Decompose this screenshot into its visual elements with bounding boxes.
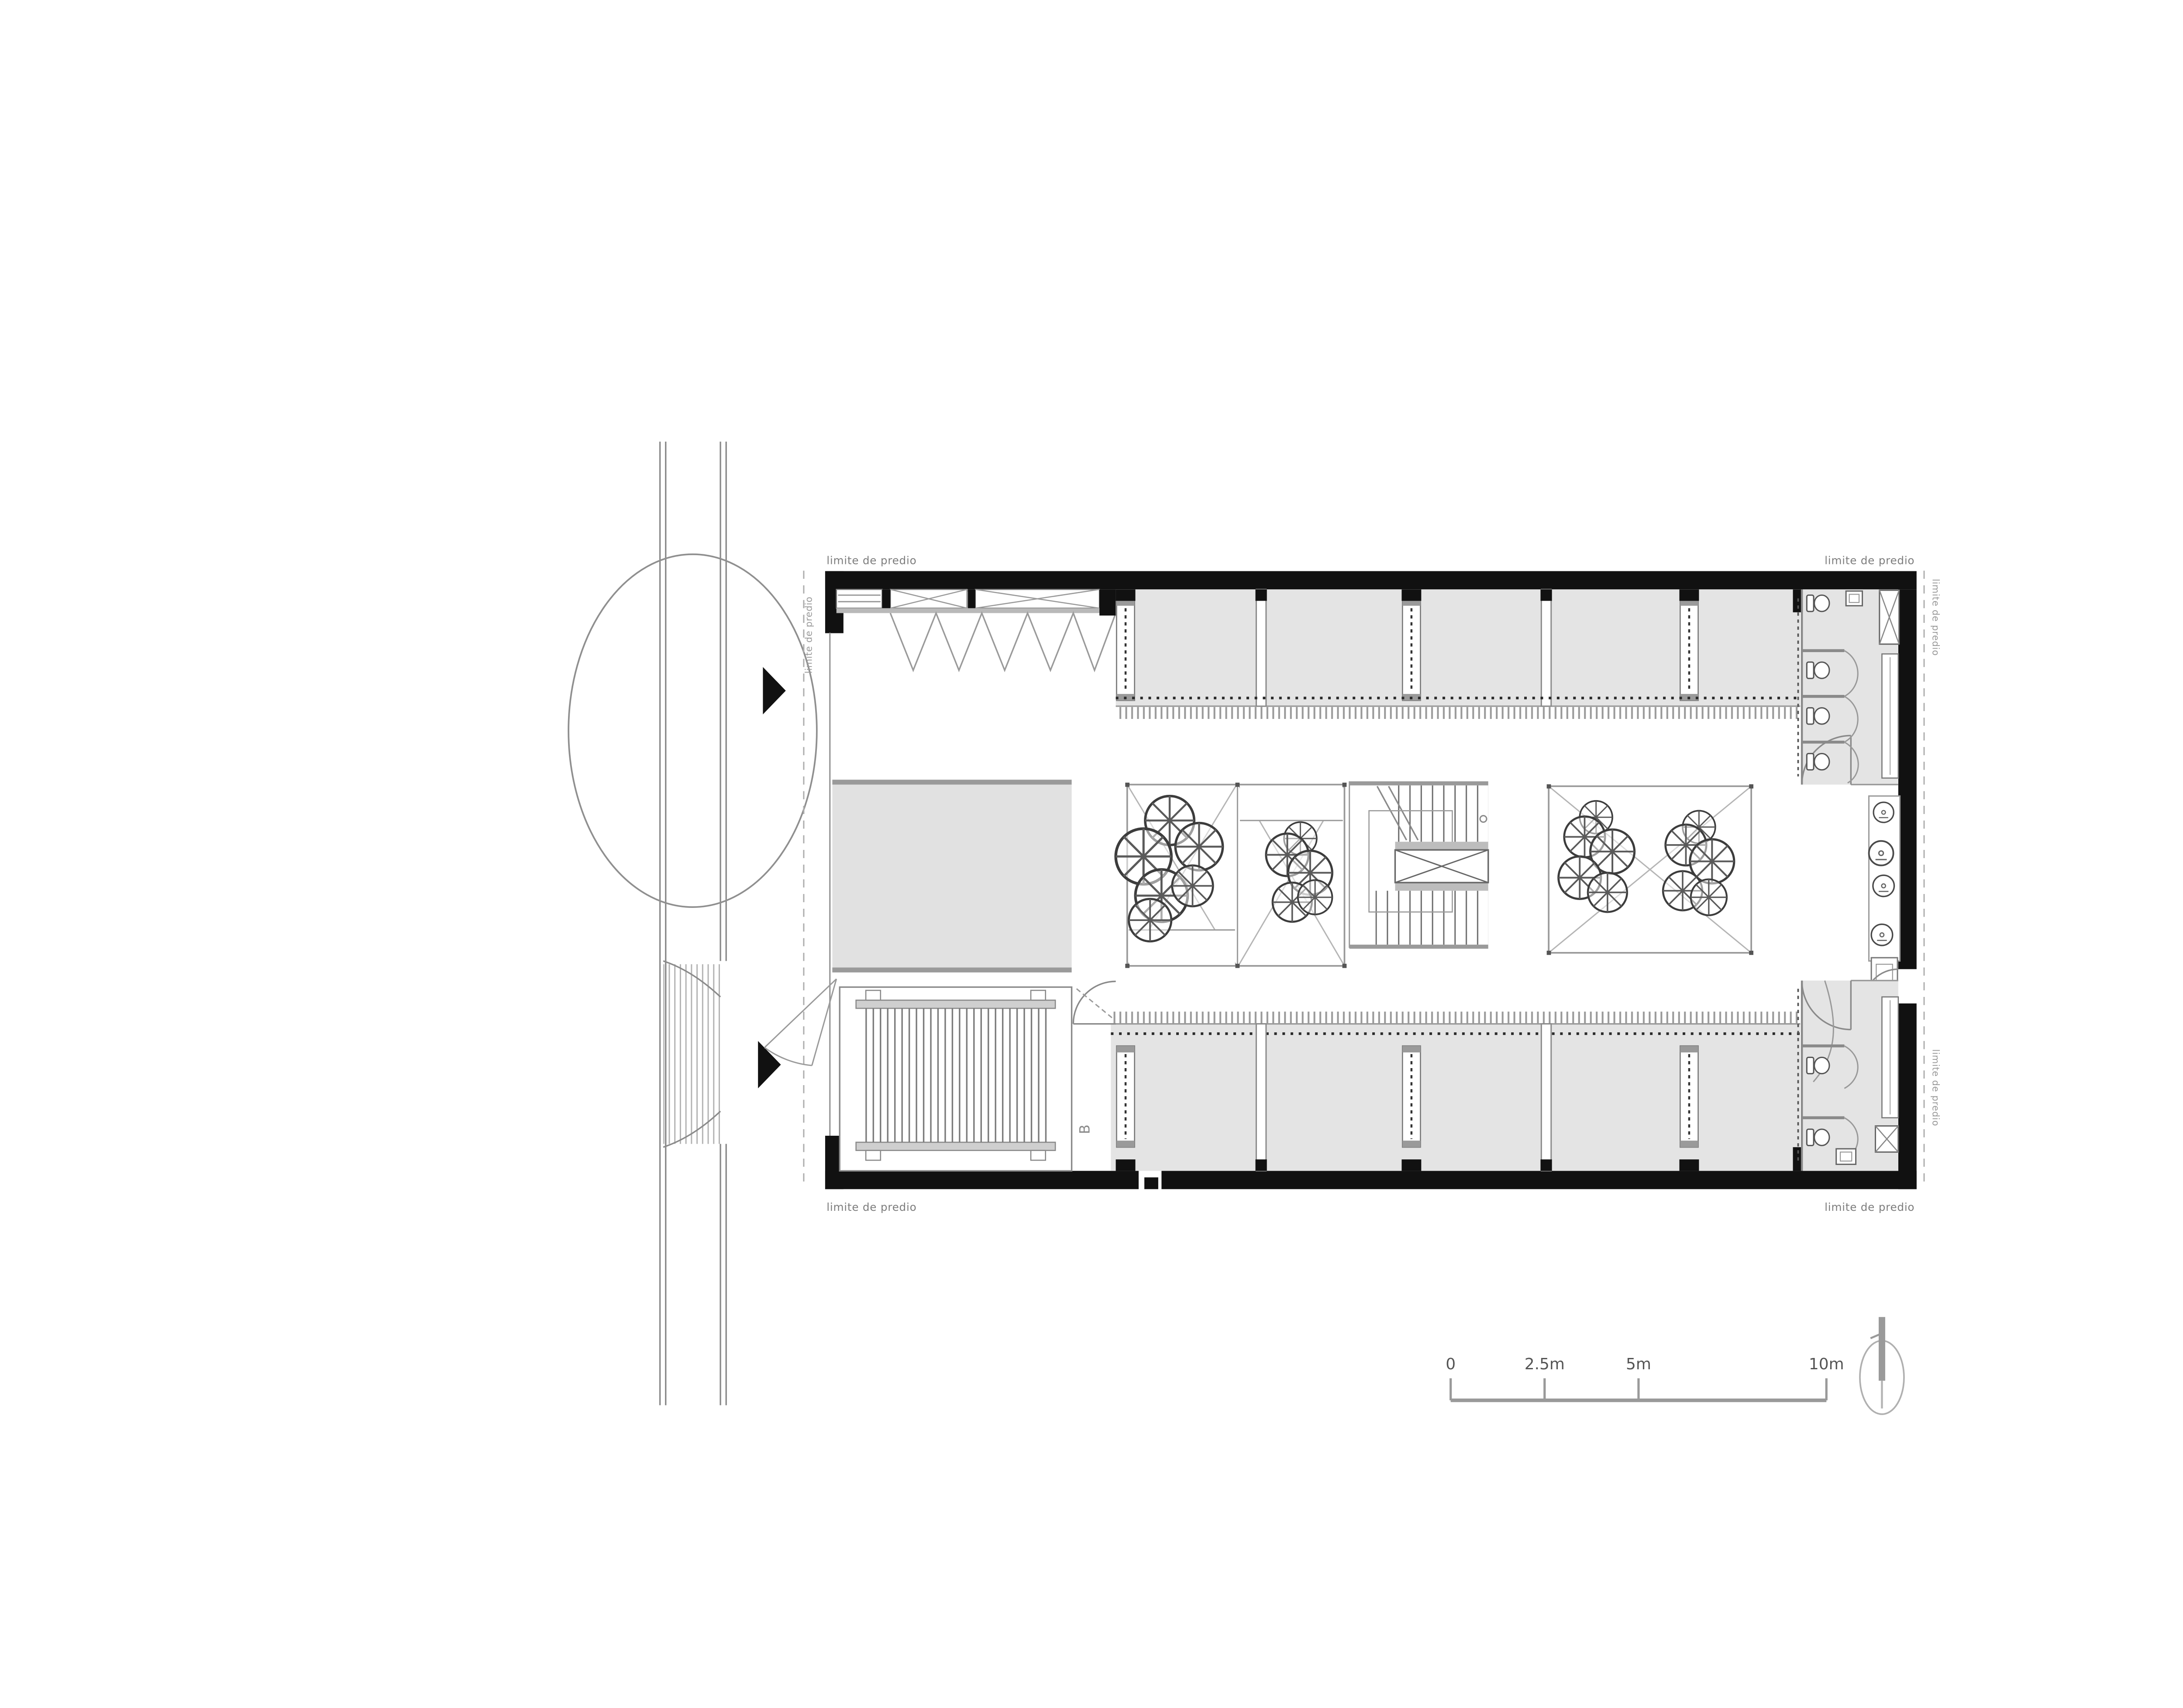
property-line-label-left-vertical: limite de predio: [804, 596, 814, 674]
toilet-icon: [1807, 753, 1829, 770]
door-swing: [1073, 981, 1116, 1024]
washbasin-strip: [1869, 796, 1900, 992]
tree-icon: [1298, 880, 1333, 914]
tree-icon: [1175, 823, 1223, 870]
washbasin-icon: [1869, 841, 1894, 866]
tree-icon: [1691, 879, 1727, 915]
duct-shaft: [1880, 590, 1899, 644]
folding-partition: [890, 613, 1116, 670]
planter-left: [1116, 783, 1347, 968]
toilet-icon: [1807, 1129, 1829, 1145]
scale-tick-label-0: 0: [1446, 1355, 1456, 1373]
room-divider-wall: [1541, 589, 1551, 706]
street-tree-canopy: [568, 554, 817, 907]
tree-icon: [1129, 899, 1171, 941]
crosswalk-hatch: [663, 964, 720, 1144]
entrance-arrow-bottom-icon: [758, 1041, 781, 1089]
planter-right: [1547, 784, 1753, 955]
property-line-label-right-top-vertical: limite de predio: [1930, 579, 1941, 656]
property-line-label-bottom-left: limite de predio: [826, 1201, 916, 1213]
toilet-icon: [1807, 1057, 1829, 1073]
washbasin-icon: [1873, 875, 1894, 897]
sink-icon: [1836, 1149, 1856, 1165]
property-line-label-bottom-right: limite de predio: [1825, 1201, 1914, 1213]
elevator: [1395, 842, 1488, 890]
gate-swing: [764, 979, 837, 1065]
toilet-icon: [1807, 595, 1829, 611]
partition-pocket: [1402, 1046, 1420, 1147]
sink-icon: [1846, 591, 1862, 606]
toilet-icon: [1807, 662, 1829, 678]
property-line-label-top-right: limite de predio: [1825, 554, 1914, 567]
louver-deck: [840, 987, 1071, 1171]
partition-pocket: [1680, 599, 1698, 701]
floor-plan-canvas: limite de predio limite de predio limite…: [0, 0, 2183, 1708]
glazing-hatch: [1111, 1012, 1800, 1024]
partition-pocket: [1116, 1046, 1134, 1147]
restroom-top: [1798, 589, 1899, 784]
partition-pocket: [1680, 1046, 1698, 1147]
section-marker-b: B: [1077, 1124, 1093, 1134]
duct-shaft: [1875, 1126, 1898, 1152]
restroom-bottom: [1798, 980, 1898, 1171]
property-line-label-right-bottom-vertical: limite de predio: [1930, 1049, 1941, 1127]
washbasin-icon: [1873, 802, 1894, 822]
washbasin-icon: [1871, 924, 1893, 945]
glazing-hatch: [1116, 707, 1801, 719]
property-line-label-top-left: limite de predio: [826, 554, 916, 567]
partition-pocket: [1116, 599, 1134, 701]
scale-bar: 0 2.5m 5m 10m: [1446, 1355, 1844, 1400]
vestibule: [837, 589, 1116, 670]
north-arrow-icon: [1860, 1317, 1904, 1414]
classroom-band-bottom: [1073, 981, 1803, 1171]
toilet-icon: [1807, 708, 1829, 724]
room-divider-wall: [1541, 1024, 1551, 1171]
classroom-band-top: [1116, 589, 1803, 719]
tree-icon: [1588, 873, 1627, 912]
room-divider-wall: [1256, 1024, 1266, 1171]
scale-tick-label-5m: 5m: [1626, 1355, 1651, 1373]
partition-pocket: [1402, 599, 1420, 701]
staircase: [1350, 781, 1488, 949]
entrance-arrow-top-icon: [763, 667, 785, 715]
tree-icon: [1172, 866, 1213, 907]
scale-tick-label-2-5m: 2.5m: [1525, 1355, 1565, 1373]
room-divider-wall: [1256, 589, 1266, 706]
floor-plan-svg: limite de predio limite de predio limite…: [0, 0, 2183, 1708]
patio: [832, 780, 1071, 973]
scale-tick-label-10m: 10m: [1809, 1355, 1844, 1373]
